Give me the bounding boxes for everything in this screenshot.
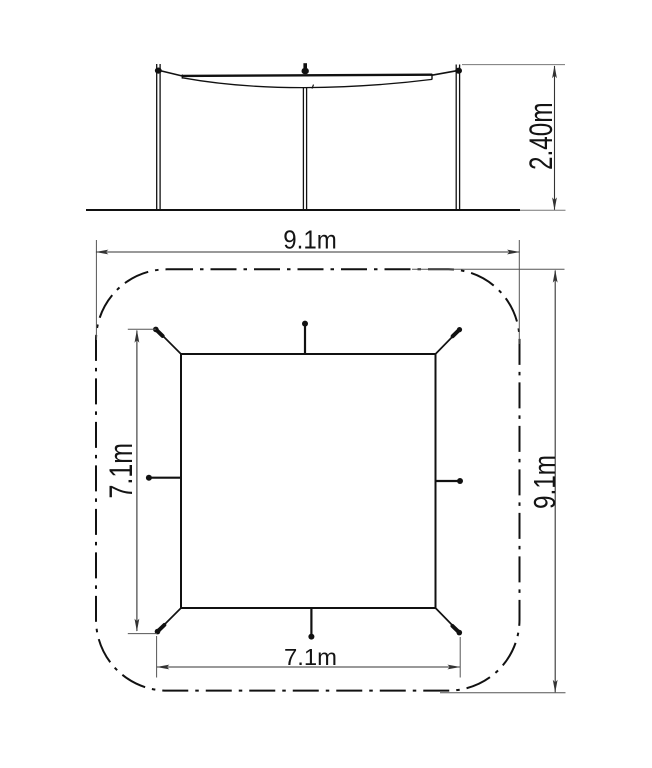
svg-text:7.1m: 7.1m xyxy=(103,443,139,499)
svg-text:7.1m: 7.1m xyxy=(284,644,337,670)
svg-text:9.1m: 9.1m xyxy=(527,455,562,509)
svg-text:9.1m: 9.1m xyxy=(283,224,337,254)
svg-text:2.40m: 2.40m xyxy=(523,102,559,170)
